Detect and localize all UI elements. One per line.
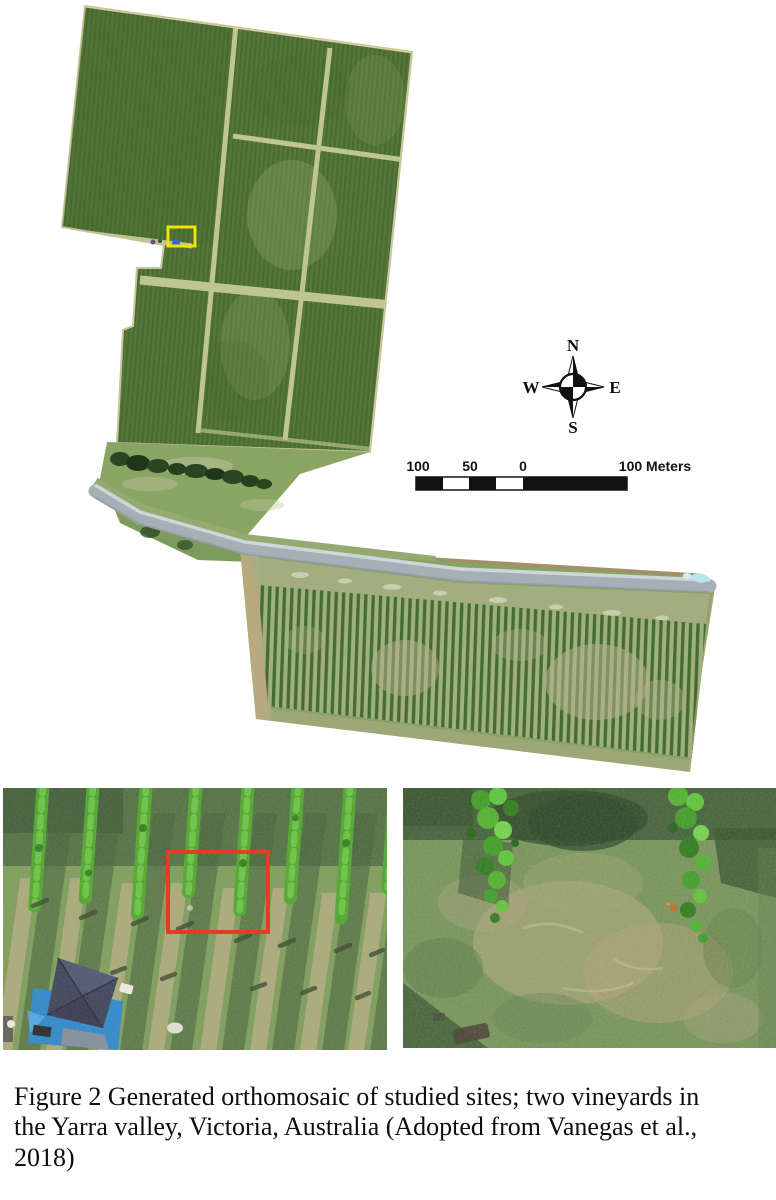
figure-caption: Figure 2 Generated orthomosaic of studie… (14, 1082, 704, 1173)
photo-vineyard-closeup-right (403, 788, 776, 1048)
scale-label-100: 100 (406, 458, 430, 474)
compass-south-label: S (568, 418, 577, 437)
compass-rose: N E S W (523, 336, 621, 437)
scale-bar: 100 50 0 100 Meters (406, 458, 691, 490)
figure-page: N E S W 100 50 0 100 Meters (0, 0, 776, 1200)
scale-label-0: 0 (519, 458, 527, 474)
orthomosaic-map: N E S W 100 50 0 100 Meters (0, 0, 776, 780)
compass-east-label: E (609, 378, 620, 397)
scale-label-100-meters: 100 Meters (619, 458, 692, 474)
photo-vineyard-closeup-left (3, 788, 387, 1050)
compass-west-label: W (523, 378, 540, 397)
compass-north-label: N (567, 336, 580, 355)
grass-strip (95, 442, 700, 577)
scale-label-50: 50 (462, 458, 478, 474)
top-vineyard-field (60, 0, 420, 460)
